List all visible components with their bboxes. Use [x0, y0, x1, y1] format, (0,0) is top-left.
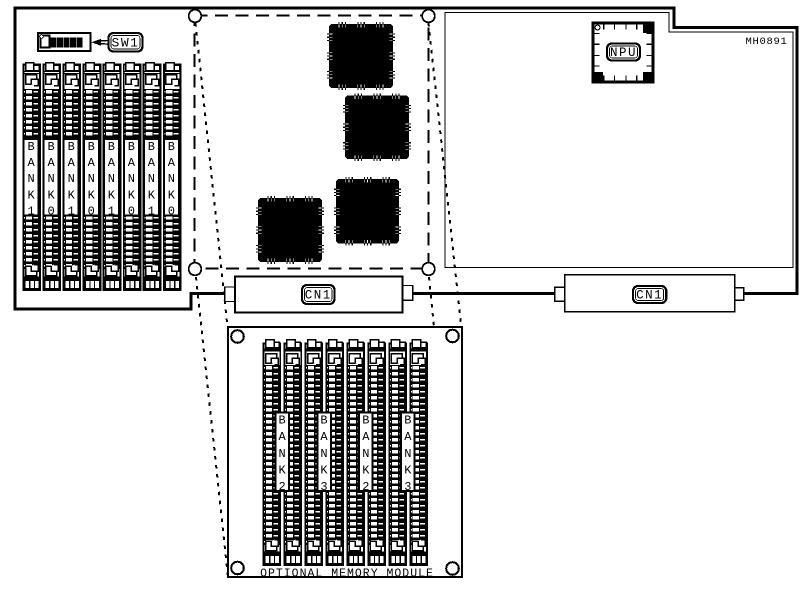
svg-text:0: 0: [168, 205, 175, 219]
svg-text:K: K: [362, 463, 370, 477]
svg-text:CN1: CN1: [636, 289, 663, 303]
svg-text:A: A: [278, 430, 286, 444]
svg-text:1: 1: [148, 205, 155, 219]
svg-text:B: B: [320, 414, 327, 428]
svg-text:N: N: [108, 172, 115, 186]
svg-text:N: N: [362, 447, 369, 461]
svg-text:0: 0: [88, 205, 95, 219]
svg-text:K: K: [148, 188, 156, 202]
svg-text:MH0891: MH0891: [745, 36, 787, 48]
svg-text:3: 3: [320, 480, 327, 494]
svg-text:OPTIONAL MEMORY MODULE: OPTIONAL MEMORY MODULE: [260, 568, 434, 581]
svg-text:B: B: [108, 140, 115, 154]
svg-text:2: 2: [362, 480, 369, 494]
svg-text:K: K: [68, 188, 76, 202]
svg-text:1: 1: [68, 205, 75, 219]
svg-text:B: B: [88, 140, 95, 154]
svg-text:K: K: [108, 188, 116, 202]
svg-text:0: 0: [128, 205, 135, 219]
svg-text:K: K: [47, 188, 55, 202]
svg-text:2: 2: [278, 480, 285, 494]
svg-text:A: A: [362, 430, 370, 444]
svg-text:K: K: [27, 188, 35, 202]
svg-text:B: B: [362, 414, 369, 428]
svg-text:K: K: [278, 463, 286, 477]
svg-text:1: 1: [27, 205, 34, 219]
svg-text:N: N: [47, 172, 54, 186]
svg-text:N: N: [68, 172, 75, 186]
svg-text:K: K: [320, 463, 328, 477]
svg-text:B: B: [148, 140, 155, 154]
svg-text:NPU: NPU: [610, 46, 637, 60]
svg-text:B: B: [278, 414, 285, 428]
svg-text:A: A: [168, 156, 176, 170]
svg-text:K: K: [404, 463, 412, 477]
svg-text:A: A: [27, 156, 35, 170]
svg-text:3: 3: [404, 480, 411, 494]
svg-text:N: N: [168, 172, 175, 186]
svg-text:A: A: [404, 430, 412, 444]
svg-text:A: A: [148, 156, 156, 170]
svg-text:1: 1: [108, 205, 115, 219]
svg-text:N: N: [320, 447, 327, 461]
svg-text:N: N: [27, 172, 34, 186]
svg-text:A: A: [88, 156, 96, 170]
svg-text:K: K: [168, 188, 176, 202]
svg-text:CN1: CN1: [305, 289, 332, 303]
svg-text:K: K: [128, 188, 136, 202]
svg-text:N: N: [148, 172, 155, 186]
svg-text:B: B: [47, 140, 54, 154]
svg-text:N: N: [278, 447, 285, 461]
svg-text:A: A: [68, 156, 76, 170]
svg-text:K: K: [88, 188, 96, 202]
svg-text:A: A: [128, 156, 136, 170]
svg-text:A: A: [108, 156, 116, 170]
svg-text:B: B: [68, 140, 75, 154]
svg-text:N: N: [128, 172, 135, 186]
svg-text:B: B: [128, 140, 135, 154]
svg-text:A: A: [320, 430, 328, 444]
svg-text:0: 0: [47, 205, 54, 219]
svg-text:SW1: SW1: [112, 36, 140, 51]
svg-text:N: N: [88, 172, 95, 186]
svg-text:B: B: [404, 414, 411, 428]
svg-text:B: B: [168, 140, 175, 154]
svg-text:A: A: [47, 156, 55, 170]
svg-text:B: B: [27, 140, 34, 154]
svg-text:N: N: [404, 447, 411, 461]
